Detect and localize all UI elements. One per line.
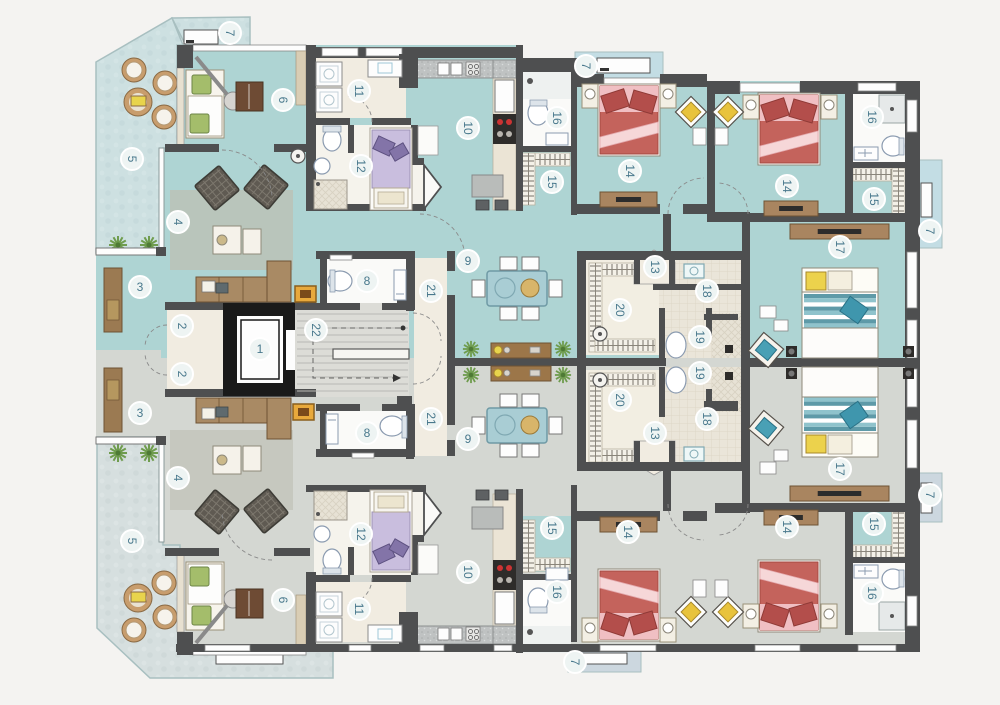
svg-text:3: 3 [137, 406, 144, 420]
svg-text:15: 15 [867, 192, 881, 206]
svg-text:17: 17 [833, 462, 847, 476]
svg-text:7: 7 [579, 63, 593, 70]
svg-text:16: 16 [865, 110, 879, 124]
svg-text:18: 18 [700, 284, 714, 298]
svg-text:7: 7 [568, 659, 582, 666]
svg-text:2: 2 [175, 371, 189, 378]
svg-text:21: 21 [424, 412, 438, 426]
svg-text:6: 6 [276, 597, 290, 604]
svg-text:12: 12 [354, 159, 368, 173]
svg-text:14: 14 [780, 520, 794, 534]
svg-text:18: 18 [700, 412, 714, 426]
svg-text:1: 1 [257, 342, 264, 356]
svg-text:19: 19 [693, 330, 707, 344]
svg-text:20: 20 [613, 303, 627, 317]
svg-text:16: 16 [865, 586, 879, 600]
svg-text:8: 8 [364, 426, 371, 440]
svg-text:8: 8 [364, 274, 371, 288]
svg-text:11: 11 [352, 603, 366, 616]
svg-text:17: 17 [833, 240, 847, 254]
svg-text:14: 14 [623, 164, 637, 178]
svg-text:12: 12 [354, 527, 368, 541]
svg-text:10: 10 [461, 565, 475, 579]
svg-text:10: 10 [461, 121, 475, 135]
svg-text:7: 7 [223, 30, 237, 37]
svg-text:7: 7 [923, 492, 937, 499]
svg-text:19: 19 [693, 366, 707, 380]
svg-text:5: 5 [125, 156, 139, 163]
svg-text:16: 16 [550, 585, 564, 599]
svg-text:2: 2 [175, 323, 189, 330]
svg-text:3: 3 [137, 280, 144, 294]
svg-text:15: 15 [867, 517, 881, 531]
svg-text:4: 4 [171, 475, 185, 482]
svg-text:22: 22 [309, 323, 323, 337]
svg-text:20: 20 [613, 393, 627, 407]
svg-text:11: 11 [352, 85, 366, 98]
svg-text:14: 14 [621, 525, 635, 539]
svg-text:4: 4 [171, 219, 185, 226]
svg-text:21: 21 [424, 284, 438, 298]
svg-text:15: 15 [545, 521, 559, 535]
svg-text:14: 14 [780, 179, 794, 193]
svg-text:13: 13 [648, 260, 662, 274]
svg-text:16: 16 [550, 111, 564, 125]
svg-text:6: 6 [276, 97, 290, 104]
svg-text:7: 7 [923, 228, 937, 235]
svg-text:15: 15 [545, 175, 559, 189]
svg-text:9: 9 [465, 432, 472, 446]
svg-text:9: 9 [465, 254, 472, 268]
svg-text:13: 13 [648, 426, 662, 440]
svg-text:5: 5 [125, 538, 139, 545]
